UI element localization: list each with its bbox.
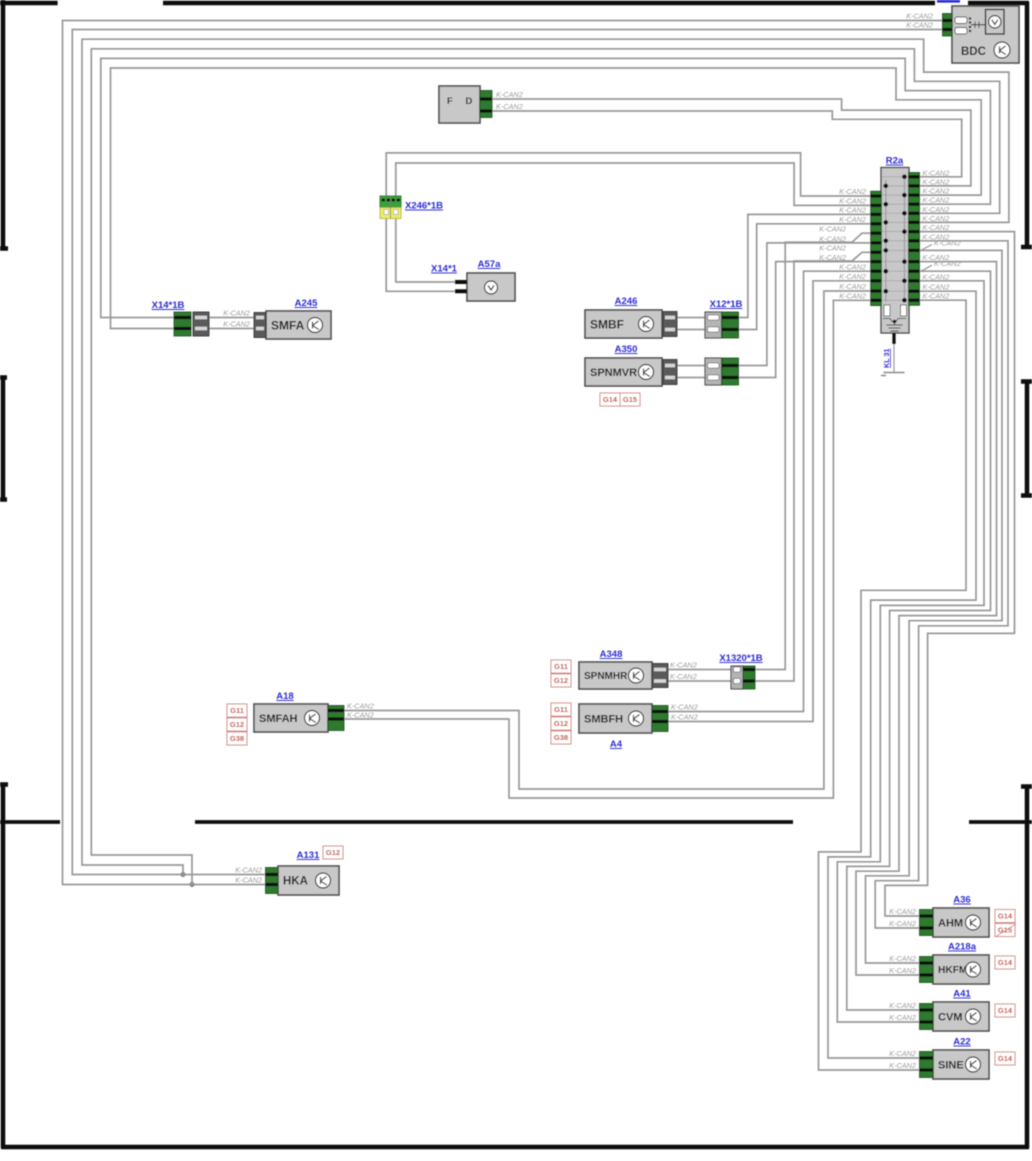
svg-text:K-CAN2: K-CAN2 [923,214,950,223]
svg-text:A348: A348 [600,649,623,660]
svg-text:K-CAN2: K-CAN2 [347,702,374,711]
svg-text:A350: A350 [615,344,638,355]
svg-text:G15: G15 [623,395,637,404]
svg-text:G12: G12 [326,848,340,857]
svg-text:SMFA: SMFA [271,318,305,332]
svg-text:K-CAN2: K-CAN2 [671,703,698,712]
svg-text:K-CAN2: K-CAN2 [347,711,374,720]
svg-text:AHM: AHM [938,917,963,929]
svg-text:A22: A22 [953,1037,970,1048]
svg-text:K-CAN2: K-CAN2 [923,177,950,186]
svg-text:K-CAN2: K-CAN2 [496,90,523,99]
svg-text:F D: F D [447,96,477,107]
svg-text:K-CAN2: K-CAN2 [496,102,523,111]
svg-text:K-CAN2: K-CAN2 [839,282,866,291]
svg-text:K-CAN2: K-CAN2 [923,205,950,214]
svg-text:K-CAN2: K-CAN2 [819,253,846,262]
svg-text:K-CAN2: K-CAN2 [670,661,697,670]
svg-text:K-CAN2: K-CAN2 [923,272,950,281]
svg-text:A36: A36 [953,895,970,906]
svg-text:K-CAN2: K-CAN2 [923,196,950,205]
svg-text:SINE: SINE [938,1059,964,1071]
svg-text:K-CAN2: K-CAN2 [934,238,961,247]
svg-text:R2a: R2a [886,156,904,167]
svg-text:K-CAN2: K-CAN2 [839,272,866,281]
svg-text:A41: A41 [953,989,971,1000]
svg-text:G14: G14 [998,1054,1013,1063]
svg-text:KL 31: KL 31 [882,349,891,368]
svg-text:K-CAN2: K-CAN2 [235,866,262,875]
svg-text:G12: G12 [554,676,568,685]
svg-text:K-CAN2: K-CAN2 [223,309,250,318]
svg-text:K-CAN2: K-CAN2 [923,292,950,301]
svg-text:K-CAN2: K-CAN2 [889,966,916,975]
svg-text:X14*1: X14*1 [431,264,458,275]
svg-text:K-CAN2: K-CAN2 [906,12,933,21]
svg-text:K-CAN2: K-CAN2 [819,244,846,253]
svg-text:G14: G14 [998,912,1013,921]
svg-text:K-CAN2: K-CAN2 [839,187,866,196]
svg-text:K-CAN2: K-CAN2 [223,320,250,329]
svg-text:K-CAN2: K-CAN2 [889,919,916,928]
svg-text:K-CAN2: K-CAN2 [889,1001,916,1010]
svg-text:A218a: A218a [948,942,977,953]
svg-text:G11: G11 [230,706,244,715]
svg-text:K-CAN2: K-CAN2 [671,713,698,722]
svg-text:K-CAN2: K-CAN2 [819,235,846,244]
svg-text:K-CAN2: K-CAN2 [819,225,846,234]
svg-text:G38: G38 [554,733,568,742]
svg-text:K-CAN2: K-CAN2 [923,223,950,232]
svg-text:G14: G14 [998,958,1013,967]
svg-text:A245: A245 [295,298,318,309]
svg-text:SPNMVR: SPNMVR [590,367,637,379]
svg-text:SMFAH: SMFAH [259,713,298,725]
svg-text:K-CAN2: K-CAN2 [906,21,933,30]
svg-text:G14: G14 [998,1006,1013,1015]
svg-text:G11: G11 [554,705,568,714]
svg-text:K-CAN2: K-CAN2 [923,168,950,177]
svg-text:K-CAN2: K-CAN2 [923,187,950,196]
svg-text:SMBFH: SMBFH [584,713,623,725]
svg-text:A18: A18 [276,691,293,702]
svg-text:K-CAN2: K-CAN2 [934,259,961,268]
svg-text:X12*1B: X12*1B [710,299,743,310]
svg-text:K-CAN2: K-CAN2 [889,1013,916,1022]
svg-text:HKA: HKA [283,876,308,888]
svg-text:HKFM: HKFM [938,965,967,976]
svg-text:A4: A4 [610,739,623,750]
svg-text:K-CAN2: K-CAN2 [839,292,866,301]
svg-text:A57a: A57a [478,259,501,270]
svg-text:G11: G11 [554,662,568,671]
svg-text:K-CAN2: K-CAN2 [839,262,866,271]
svg-text:SMBF: SMBF [590,317,624,331]
svg-text:SPNMHR: SPNMHR [584,671,628,682]
svg-text:K-CAN2: K-CAN2 [670,672,697,681]
svg-text:X1320*1B: X1320*1B [719,653,762,664]
svg-text:A246: A246 [615,296,638,307]
svg-text:BDC: BDC [961,46,986,58]
svg-text:K-CAN2: K-CAN2 [889,907,916,916]
svg-text:G12: G12 [554,719,568,728]
svg-text:K-CAN2: K-CAN2 [839,215,866,224]
svg-text:K-CAN2: K-CAN2 [839,197,866,206]
svg-text:G38: G38 [230,734,244,743]
svg-text:K-CAN2: K-CAN2 [889,1061,916,1070]
svg-text:G12: G12 [230,720,244,729]
svg-text:G15: G15 [998,926,1012,935]
svg-text:CVM: CVM [938,1011,962,1023]
svg-text:X246*1B: X246*1B [405,201,443,212]
svg-text:G14: G14 [603,395,618,404]
svg-text:K-CAN2: K-CAN2 [923,283,950,292]
svg-text:A131: A131 [297,850,320,861]
svg-text:K-CAN2: K-CAN2 [889,954,916,963]
svg-text:K-CAN2: K-CAN2 [235,876,262,885]
svg-text:X14*1B: X14*1B [152,300,185,311]
svg-text:K-CAN2: K-CAN2 [839,206,866,215]
svg-text:K-CAN2: K-CAN2 [889,1049,916,1058]
